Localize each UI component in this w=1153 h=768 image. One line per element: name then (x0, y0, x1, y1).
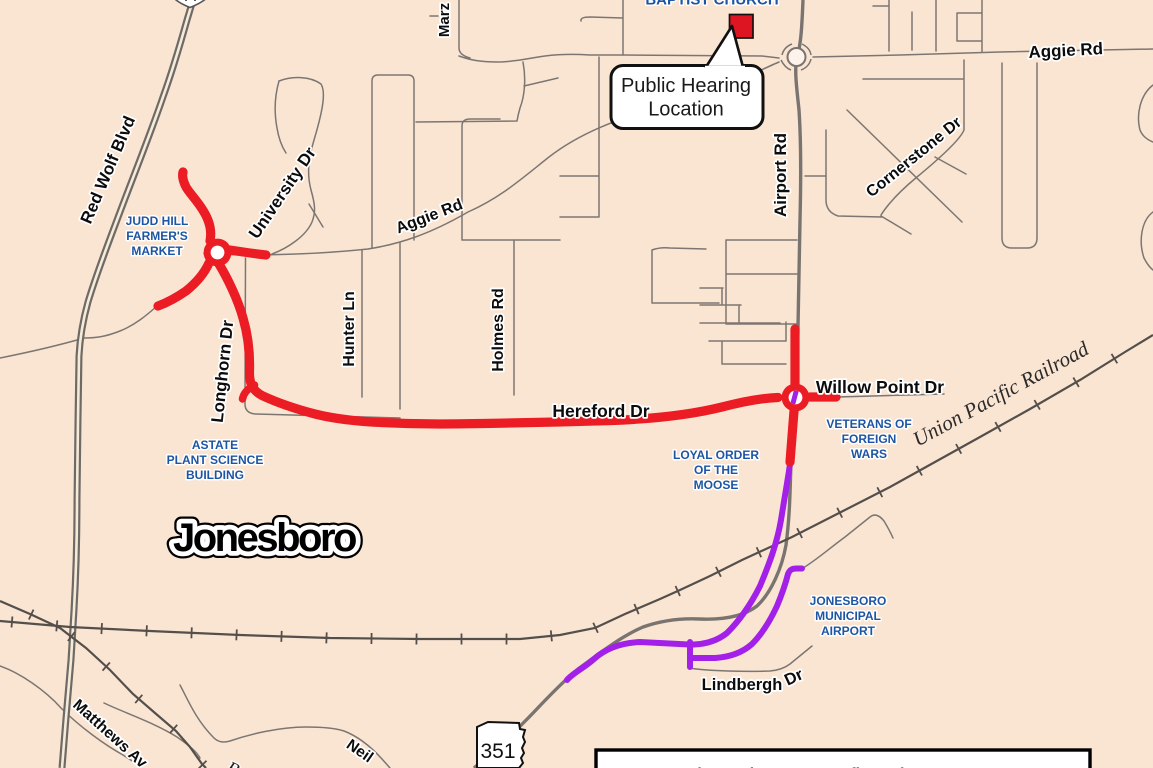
svg-text:Marz: Marz (436, 3, 453, 37)
svg-text:Airport Rd: Airport Rd (771, 133, 790, 217)
svg-text:LOYAL ORDER: LOYAL ORDER (673, 448, 759, 462)
svg-text:VETERANS OF: VETERANS OF (826, 417, 911, 431)
svg-text:MOOSE: MOOSE (694, 478, 739, 492)
svg-text:Willow Point Dr: Willow Point Dr (816, 377, 944, 397)
svg-text:Location: Location (648, 99, 724, 121)
svg-text:Public Hearing: Public Hearing (621, 75, 751, 97)
svg-text:MUNICIPAL: MUNICIPAL (815, 609, 881, 623)
svg-text:BUILDING: BUILDING (186, 468, 244, 482)
svg-text:Hunter Ln: Hunter Ln (341, 291, 358, 367)
svg-text:Holmes Rd: Holmes Rd (490, 288, 507, 372)
svg-text:MARKET: MARKET (131, 244, 183, 258)
svg-text:OF THE: OF THE (694, 463, 738, 477)
svg-text:Lindbergh: Lindbergh (702, 676, 783, 694)
svg-text:BAPTIST CHURCH: BAPTIST CHURCH (645, 0, 778, 9)
svg-text:Jonesboro: Jonesboro (173, 516, 356, 560)
svg-text:JUDD HILL: JUDD HILL (126, 214, 189, 228)
svg-text:JONESBORO: JONESBORO (810, 594, 887, 608)
svg-text:WARS: WARS (851, 447, 887, 461)
svg-text:Hereford Dr: Hereford Dr (552, 401, 649, 421)
svg-text:FARMER'S: FARMER'S (126, 229, 188, 243)
svg-text:Aggie Rd: Aggie Rd (1028, 39, 1104, 62)
svg-text:PLANT SCIENCE: PLANT SCIENCE (167, 453, 264, 467)
svg-text:351: 351 (480, 740, 515, 763)
svg-text:AIRPORT: AIRPORT (821, 624, 876, 638)
svg-text:FOREIGN: FOREIGN (842, 432, 897, 446)
svg-text:ASTATE: ASTATE (192, 438, 238, 452)
